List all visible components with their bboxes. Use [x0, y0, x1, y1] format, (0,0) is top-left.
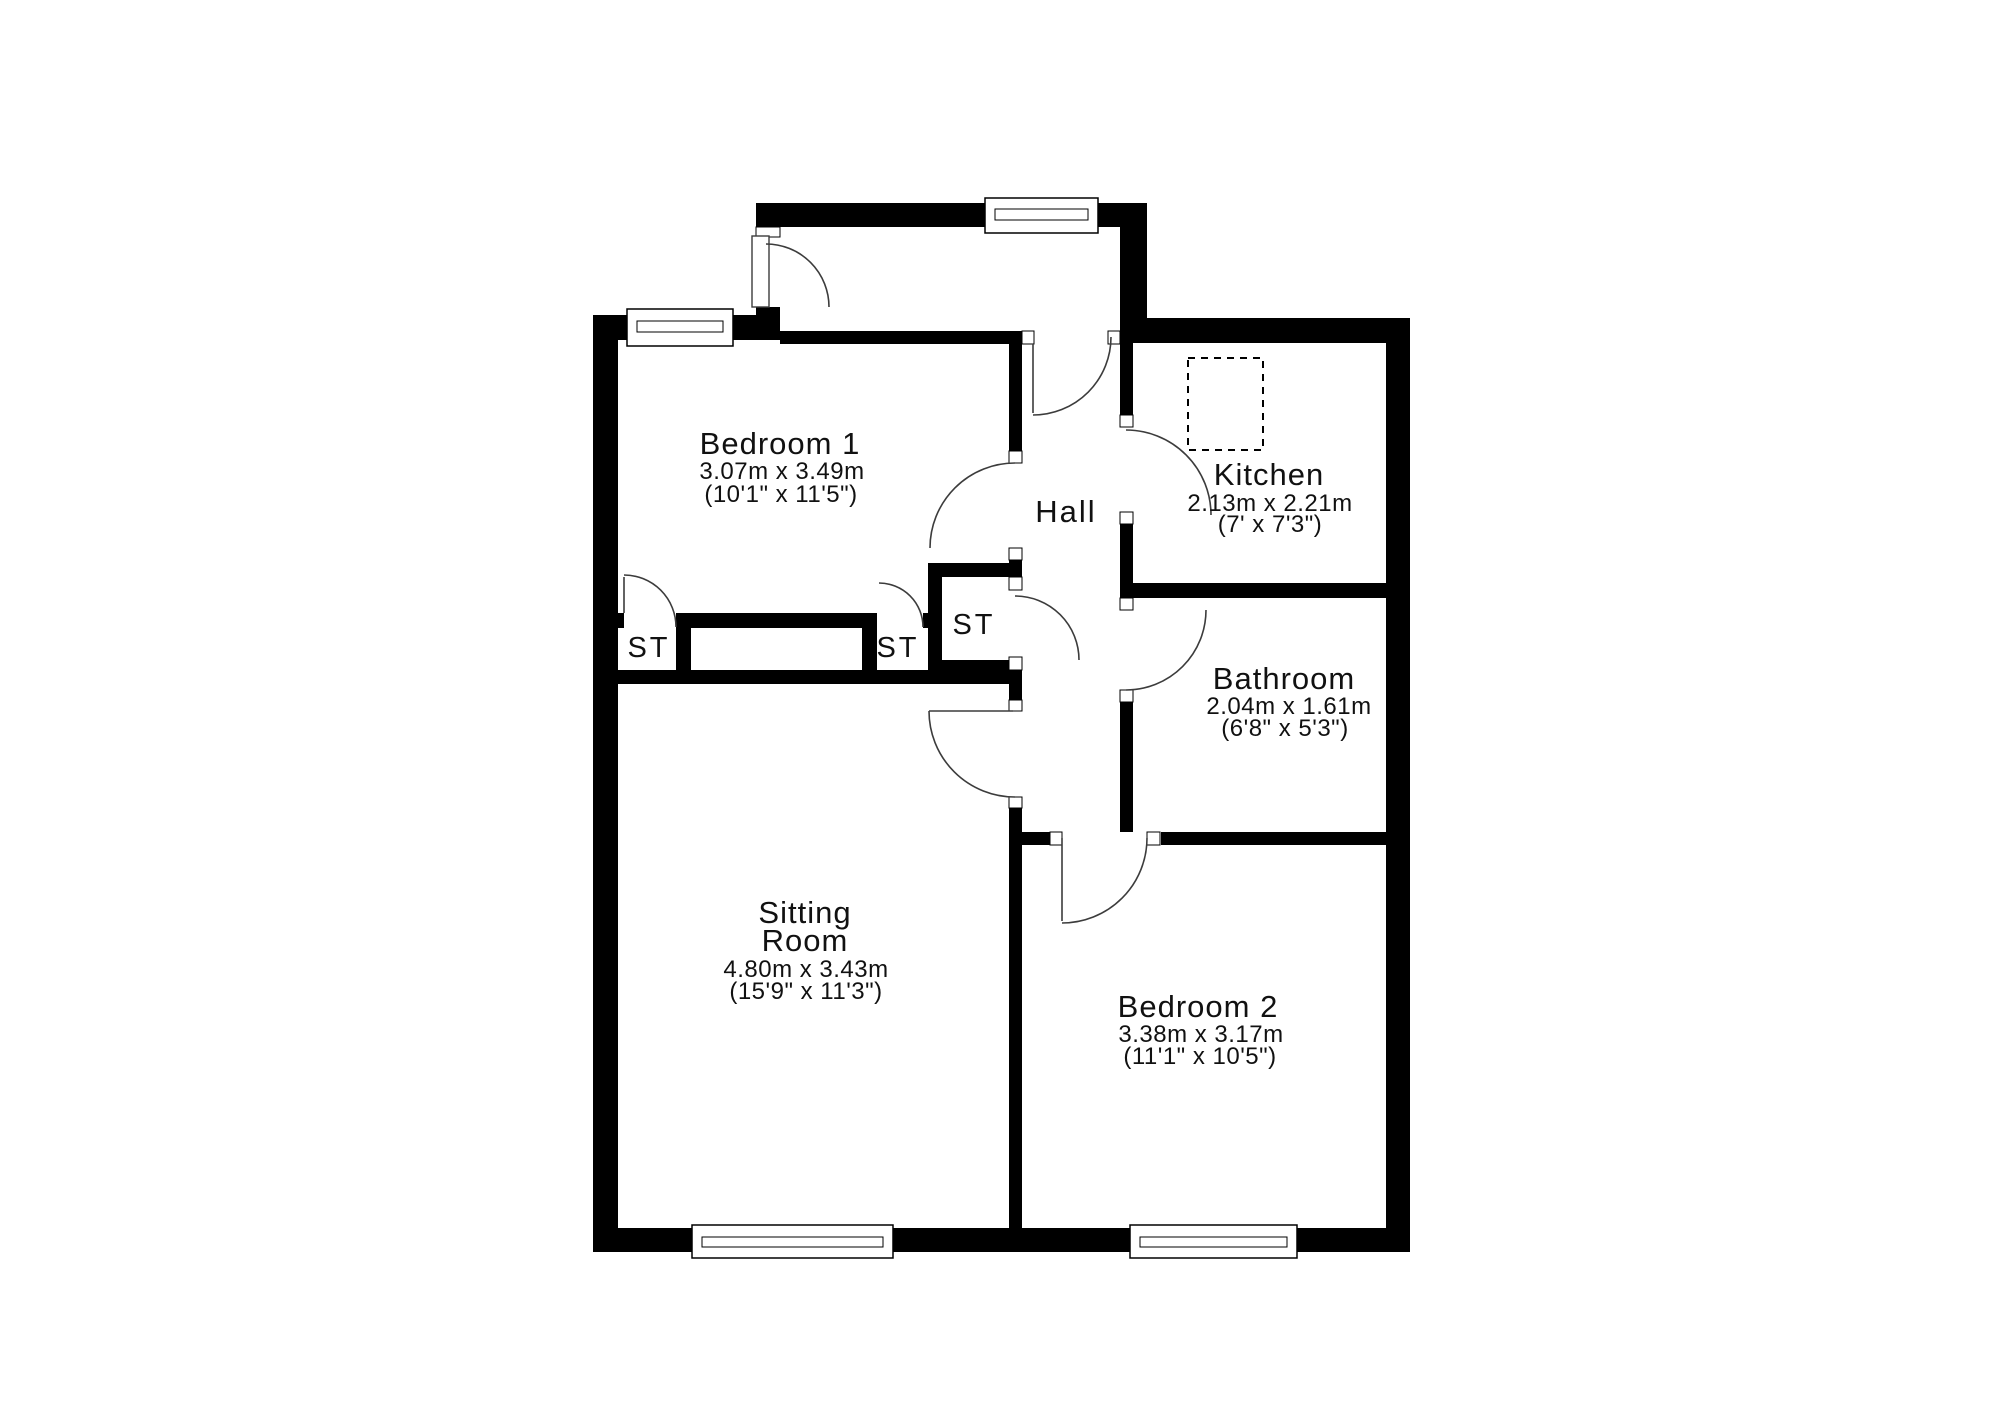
- sitting-room-dims-imperial: (15'9" x 11'3"): [729, 978, 882, 1005]
- bedroom2-dims-imperial: (11'1" x 10'5"): [1123, 1043, 1276, 1070]
- kitchen-appliance-dashed: [1188, 358, 1263, 450]
- entrance-door-leaf: [752, 236, 769, 307]
- door-arc-storage-mid: [879, 583, 923, 627]
- wall-sitting-hall: [1009, 670, 1022, 700]
- jamb-hall-door-left: [1022, 331, 1034, 344]
- window-sitting-glazing: [702, 1237, 883, 1247]
- door-arc-storage-left: [624, 575, 676, 627]
- jamb-bedroom2-door-right: [1147, 832, 1160, 845]
- door-arc-entrance: [766, 244, 829, 307]
- jamb-bedroom1-door-bottom: [1009, 548, 1022, 560]
- door-arc-bedroom1: [930, 463, 1015, 548]
- window-hall-vestibule: [985, 198, 1098, 233]
- sitting-room-name-line2: Room: [762, 923, 849, 958]
- door-arc-bathroom: [1126, 610, 1206, 690]
- window-hall-glazing: [995, 209, 1088, 220]
- kitchen-name: Kitchen: [1214, 457, 1324, 492]
- storage-left-label: ST: [627, 632, 670, 664]
- wall-exterior-right: [1386, 318, 1410, 1252]
- jamb-bedroom2-door-left: [1050, 832, 1062, 845]
- floor-plan-drawing: Bedroom 1 3.07m x 3.49m (10'1" x 11'5") …: [0, 0, 2000, 1414]
- wall-exterior-left: [593, 315, 618, 1252]
- bathroom-dims-imperial: (6'8" x 5'3"): [1221, 715, 1348, 742]
- kitchen-dims-imperial: (7' x 7'3"): [1218, 511, 1323, 538]
- window-bedroom1-glazing: [637, 321, 723, 332]
- storage-right-label: ST: [952, 609, 995, 641]
- window-bedroom1: [627, 309, 733, 346]
- hall-name: Hall: [1035, 494, 1096, 529]
- floor-plan-canvas: Bedroom 1 3.07m x 3.49m (10'1" x 11'5") …: [0, 0, 2000, 1414]
- room-labels: Bedroom 1 3.07m x 3.49m (10'1" x 11'5") …: [627, 426, 1371, 1070]
- wall-storage-right-top: [928, 563, 1022, 577]
- bathroom-name: Bathroom: [1213, 661, 1355, 696]
- wall-storage-left-stub: [676, 613, 691, 670]
- wall-sitting-bedroom2-divider: [1009, 808, 1022, 1228]
- jamb-storage-door-bottom: [1009, 657, 1022, 670]
- wall-bathroom-bottom: [1161, 832, 1386, 845]
- windows: [627, 198, 1297, 1258]
- jamb-sitting-door-top: [1009, 700, 1022, 711]
- jamb-sitting-door-bottom: [1009, 797, 1022, 808]
- wall-storage-mid-stub: [862, 613, 877, 670]
- bedroom2-name: Bedroom 2: [1118, 989, 1279, 1024]
- jamb-bathroom-door-top: [1120, 598, 1133, 610]
- wall-kitchen-top: [1120, 318, 1410, 343]
- door-arc-bedroom2: [1062, 838, 1147, 923]
- jamb-bedroom1-door-top: [1009, 451, 1022, 463]
- door-jambs: [756, 227, 1160, 845]
- wall-bedroom1-bottom-b: [691, 613, 864, 628]
- wall-bedroom1-bottom-a: [616, 613, 624, 628]
- wall-bathroom-left: [1120, 702, 1133, 832]
- jamb-kitchen-door-top: [1120, 415, 1133, 427]
- wall-kitchen-bottom: [1120, 583, 1386, 598]
- door-arc-hall: [1033, 337, 1111, 415]
- wall-bedroom2-stub: [1022, 832, 1050, 845]
- storage-mid-label: ST: [876, 632, 919, 664]
- wall-vestibule-left-lower: [756, 307, 780, 340]
- door-arc-storage-right: [1015, 596, 1079, 660]
- door-arc-sitting-room: [929, 711, 1015, 797]
- bedroom1-name: Bedroom 1: [700, 426, 861, 461]
- window-sitting-room: [692, 1225, 893, 1258]
- wall-bedroom1-right-upper: [1009, 343, 1022, 452]
- wall-sitting-room-top: [593, 670, 1010, 684]
- wall-bedroom1-bottom-c: [923, 613, 930, 628]
- jamb-hall-door-right: [1108, 331, 1120, 344]
- jamb-bathroom-door-bottom: [1120, 690, 1133, 702]
- wall-storage-mid-divider: [928, 563, 942, 673]
- bedroom1-dims-imperial: (10'1" x 11'5"): [704, 481, 857, 508]
- window-bedroom2-glazing: [1140, 1237, 1287, 1247]
- wall-hall-kitchen-upper: [1120, 332, 1133, 415]
- jamb-storage-door-top: [1009, 577, 1022, 590]
- wall-vestibule-bedroom1-divider: [780, 331, 1022, 344]
- window-bedroom2: [1130, 1225, 1297, 1258]
- jamb-kitchen-door-bottom: [1120, 512, 1133, 524]
